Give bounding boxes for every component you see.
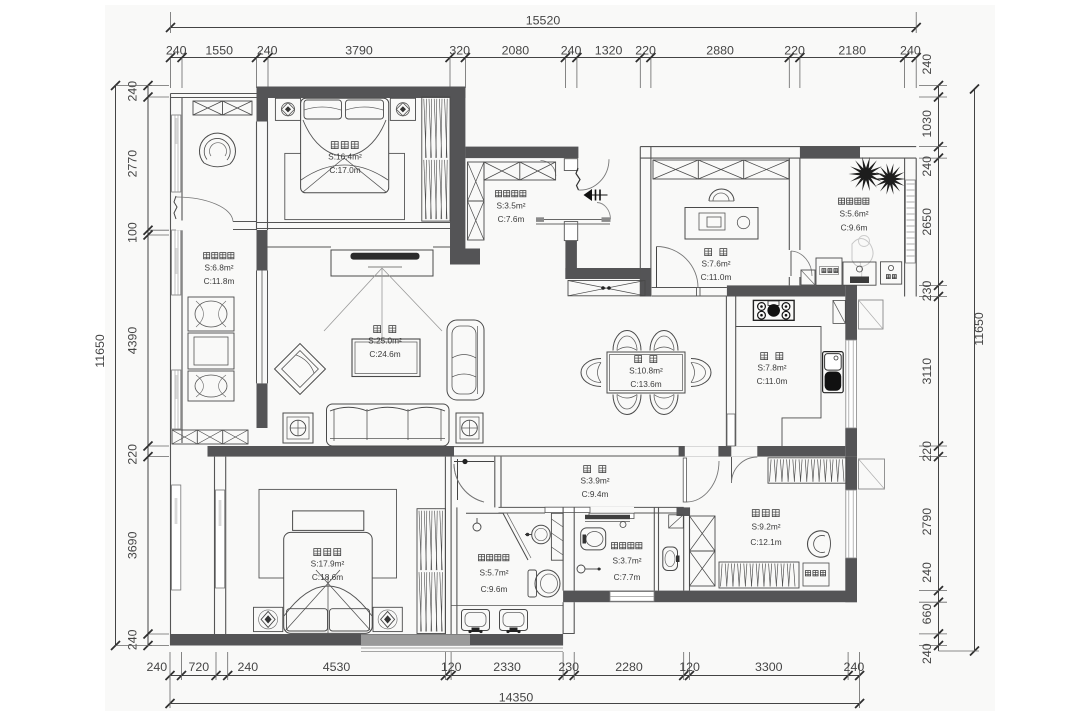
svg-text:1030: 1030 [920, 110, 934, 138]
svg-text:S:25.0m²: S:25.0m² [368, 336, 402, 346]
svg-text:240: 240 [561, 44, 582, 58]
svg-text:15520: 15520 [526, 14, 561, 28]
svg-text:240: 240 [900, 44, 921, 58]
svg-text:240: 240 [126, 81, 140, 102]
svg-text:240: 240 [844, 660, 865, 674]
svg-text:2180: 2180 [838, 44, 866, 58]
svg-text:2770: 2770 [126, 150, 140, 178]
svg-text:240: 240 [920, 54, 934, 75]
svg-text:120: 120 [441, 660, 462, 674]
svg-text:320: 320 [449, 44, 470, 58]
svg-text:S:7.6m²: S:7.6m² [701, 259, 730, 269]
svg-text:C:13.6m: C:13.6m [630, 379, 661, 389]
svg-text:2650: 2650 [920, 208, 934, 236]
svg-text:C:9.6m: C:9.6m [841, 223, 868, 233]
svg-text:S:5.7m²: S:5.7m² [479, 568, 508, 578]
svg-text:S:17.9m²: S:17.9m² [311, 559, 345, 569]
svg-text:240: 240 [146, 660, 167, 674]
svg-text:3300: 3300 [755, 660, 783, 674]
svg-text:S:3.5m²: S:3.5m² [496, 201, 525, 211]
svg-text:S:9.2m²: S:9.2m² [751, 522, 780, 532]
svg-text:4390: 4390 [126, 327, 140, 355]
svg-text:220: 220 [784, 44, 805, 58]
svg-text:120: 120 [679, 660, 700, 674]
svg-text:2280: 2280 [615, 660, 643, 674]
svg-text:240: 240 [257, 44, 278, 58]
svg-text:230: 230 [558, 660, 579, 674]
svg-text:C:17.0m: C:17.0m [329, 165, 360, 175]
svg-text:2330: 2330 [493, 660, 521, 674]
svg-text:2080: 2080 [502, 44, 530, 58]
svg-text:C:7.7m: C:7.7m [614, 572, 641, 582]
svg-text:C:9.4m: C:9.4m [582, 489, 609, 499]
svg-text:240: 240 [920, 156, 934, 177]
svg-text:240: 240 [126, 629, 140, 650]
svg-text:230: 230 [920, 280, 934, 301]
svg-text:C:9.6m: C:9.6m [481, 584, 508, 594]
svg-text:11650: 11650 [93, 334, 107, 368]
svg-text:S:10.8m²: S:10.8m² [629, 366, 663, 376]
svg-text:220: 220 [920, 441, 934, 462]
svg-text:220: 220 [126, 444, 140, 465]
svg-text:11650: 11650 [972, 312, 986, 346]
svg-text:S:6.8m²: S:6.8m² [204, 263, 233, 273]
svg-text:14350: 14350 [499, 691, 534, 705]
svg-text:240: 240 [920, 562, 934, 583]
svg-text:240: 240 [166, 44, 187, 58]
svg-text:100: 100 [126, 222, 140, 243]
svg-text:1320: 1320 [595, 44, 623, 58]
svg-text:1550: 1550 [205, 44, 233, 58]
svg-text:220: 220 [635, 44, 656, 58]
svg-text:C:12.1m: C:12.1m [750, 537, 781, 547]
svg-text:C:11.0m: C:11.0m [757, 376, 788, 386]
svg-text:S:5.6m²: S:5.6m² [839, 209, 868, 219]
svg-text:3790: 3790 [345, 44, 373, 58]
svg-text:S:16.4m²: S:16.4m² [328, 152, 362, 162]
svg-text:S:3.7m²: S:3.7m² [612, 556, 641, 566]
svg-text:C:11.0m: C:11.0m [701, 272, 732, 282]
svg-text:240: 240 [920, 643, 934, 664]
svg-text:2880: 2880 [706, 44, 734, 58]
svg-text:S:7.8m²: S:7.8m² [757, 363, 786, 373]
svg-text:3690: 3690 [126, 531, 140, 559]
svg-text:C:24.6m: C:24.6m [369, 349, 400, 359]
svg-text:C:7.6m: C:7.6m [498, 214, 525, 224]
svg-text:720: 720 [188, 660, 209, 674]
svg-text:240: 240 [237, 660, 258, 674]
svg-text:S:3.9m²: S:3.9m² [580, 476, 609, 486]
svg-text:4530: 4530 [323, 660, 351, 674]
svg-text:2790: 2790 [920, 508, 934, 536]
svg-text:C:11.8m: C:11.8m [204, 276, 235, 286]
svg-text:660: 660 [920, 604, 934, 625]
svg-text:C:18.6m: C:18.6m [312, 572, 343, 582]
svg-text:3110: 3110 [920, 358, 934, 385]
